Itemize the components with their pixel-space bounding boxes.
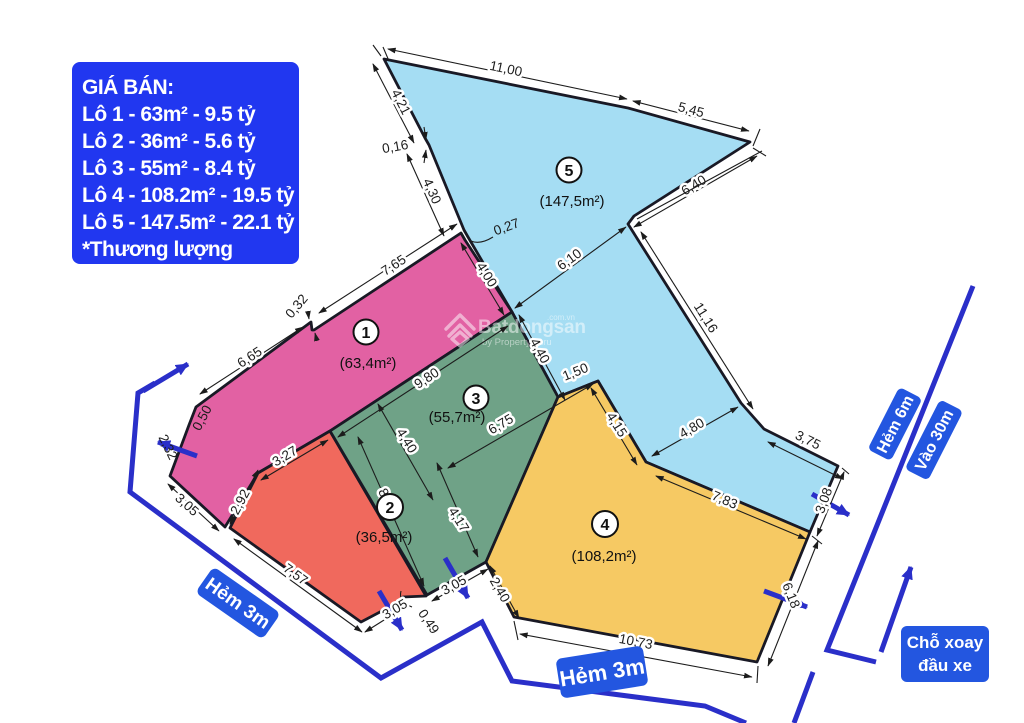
svg-text:(55,7m²): (55,7m²) — [429, 409, 486, 426]
svg-text:5: 5 — [565, 163, 574, 180]
svg-text:3: 3 — [472, 391, 481, 408]
svg-text:GIÁ BÁN:: GIÁ BÁN: — [82, 76, 174, 99]
svg-text:*Thương lượng: *Thương lượng — [82, 238, 233, 261]
svg-text:4: 4 — [601, 517, 610, 534]
svg-text:Lô 5 - 147.5m² - 22.1 tỷ: Lô 5 - 147.5m² - 22.1 tỷ — [82, 211, 295, 234]
svg-text:đầu xe: đầu xe — [918, 656, 972, 675]
svg-text:(63,4m²): (63,4m²) — [340, 355, 397, 372]
svg-text:2: 2 — [386, 500, 395, 517]
svg-text:(36,5m²): (36,5m²) — [356, 529, 413, 546]
svg-text:(108,2m²): (108,2m²) — [571, 548, 636, 565]
svg-text:Lô 3 - 55m² - 8.4 tỷ: Lô 3 - 55m² - 8.4 tỷ — [82, 157, 256, 180]
svg-text:Lô 2 - 36m² - 5.6 tỷ: Lô 2 - 36m² - 5.6 tỷ — [82, 130, 256, 153]
svg-text:Chỗ xoay: Chỗ xoay — [907, 633, 984, 652]
svg-text:.com.vn: .com.vn — [547, 313, 575, 322]
svg-text:Lô 1 - 63m² - 9.5 tỷ: Lô 1 - 63m² - 9.5 tỷ — [82, 103, 256, 126]
svg-text:(147,5m²): (147,5m²) — [539, 193, 604, 210]
svg-text:1: 1 — [362, 325, 371, 342]
svg-text:Lô 4 - 108.2m² - 19.5 tỷ: Lô 4 - 108.2m² - 19.5 tỷ — [82, 184, 295, 207]
